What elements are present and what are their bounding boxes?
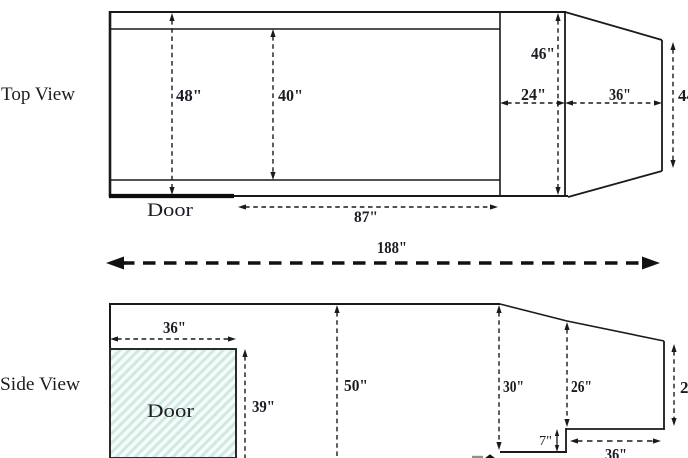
svg-text:26": 26" <box>571 377 592 396</box>
svg-text:25": 25" <box>680 378 688 397</box>
svg-text:188": 188" <box>377 238 407 257</box>
svg-text:Door: Door <box>147 200 194 221</box>
svg-text:7": 7" <box>539 434 552 449</box>
svg-text:Top View: Top View <box>1 84 75 105</box>
svg-text:46": 46" <box>531 44 555 63</box>
svg-text:48": 48" <box>176 86 202 105</box>
svg-text:50": 50" <box>344 376 368 395</box>
svg-text:36": 36" <box>609 85 631 104</box>
svg-text:87": 87" <box>354 209 378 226</box>
svg-text:Side View: Side View <box>0 374 80 395</box>
svg-text:44": 44" <box>678 86 688 105</box>
svg-text:36": 36" <box>605 445 627 458</box>
svg-text:24": 24" <box>521 85 546 104</box>
svg-text:36": 36" <box>163 318 186 337</box>
svg-text:40": 40" <box>278 86 303 105</box>
svg-text:Door: Door <box>147 401 195 422</box>
svg-text:39": 39" <box>252 397 275 416</box>
svg-text:30": 30" <box>503 377 524 396</box>
